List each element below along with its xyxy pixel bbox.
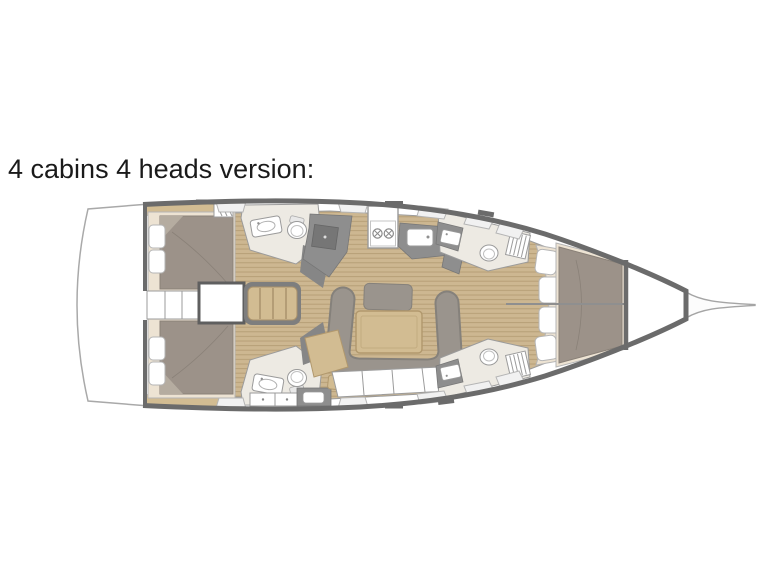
pillow: [149, 362, 165, 385]
yacht-floor-plan-diagram: [0, 0, 768, 576]
cleat: [385, 201, 403, 206]
salon-table: [356, 311, 422, 353]
toilet-icon: [480, 245, 498, 261]
toilet-icon: [288, 215, 307, 238]
toilet-icon: [480, 349, 498, 365]
pillow: [149, 250, 165, 273]
salon-bench: [364, 283, 413, 311]
pillow: [149, 225, 165, 248]
sink-icon: [303, 392, 324, 403]
locker-cells: [147, 291, 199, 319]
cleat: [196, 200, 214, 205]
side-shelf: [534, 249, 558, 276]
side-shelf: [534, 335, 558, 362]
page: 4 cabins 4 heads version:: [0, 0, 768, 576]
prep-unit: [312, 224, 339, 249]
bowsprit: [686, 292, 755, 318]
aft-cabin-starboard: [146, 319, 235, 407]
companionway-hatch: [199, 283, 244, 323]
stove-icon: [368, 206, 398, 248]
cleat: [385, 404, 403, 409]
locker-row: [250, 393, 298, 406]
pillow: [149, 337, 165, 360]
